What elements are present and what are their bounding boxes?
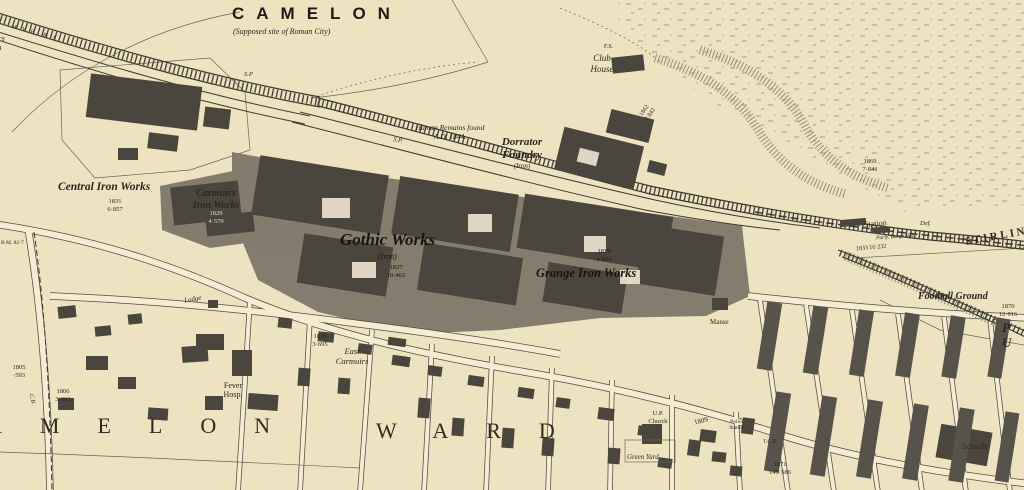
label-gothic-sub: (Iron): [378, 252, 397, 261]
label-central-iron-works: Central Iron Works: [58, 181, 150, 195]
label-camelon: CAMELON: [232, 4, 402, 24]
label-football-ground: Football Ground: [918, 291, 988, 303]
label-camelon-subtitle: (Supposed site of Roman City): [233, 27, 330, 36]
label-carmuirs-nums: 1829 4·579: [196, 210, 236, 225]
label-green-yard: Green Yard: [627, 453, 659, 461]
label-nums-1806: 1806 3·002: [44, 388, 82, 403]
label-signal-post-1: S.P: [244, 71, 253, 79]
label-human-remains: Human Remains found A.D. 1844.: [404, 124, 496, 142]
label-fever-hospital: Fever Hosp.: [212, 381, 254, 400]
label-police-station: Police Station: [722, 419, 752, 432]
label-signal-post-2: S.P.: [392, 136, 403, 145]
label-gothic-works: Gothic Works: [340, 230, 435, 250]
label-ward-ward: WARD: [376, 418, 593, 444]
label-nums-1869: 1869 7·841: [850, 158, 890, 173]
label-benchmark: B.M. 82·7: [1, 240, 24, 246]
label-carmuirs-iron-works: Carmuirs Iron Works: [178, 188, 254, 212]
label-grange-iron-works: Grange Iron Works: [536, 266, 636, 281]
label-schools: Schools: [962, 442, 987, 451]
label-def-mark: Def.: [920, 220, 931, 228]
label-carmuirs-junction: Carmuirs Junction: [0, 34, 5, 53]
label-dorrator-foundry: Dorrator Foundry: [494, 136, 550, 162]
label-dorrator-sub: (Iron): [502, 162, 542, 170]
label-ward-amelon: AMELON: [0, 413, 308, 439]
label-gothic-nums: 1827 10·462: [372, 264, 420, 279]
label-club-house: Club House: [582, 53, 622, 74]
label-manse: Manse: [710, 318, 729, 326]
label-grange-nums: 1819 4·836: [584, 248, 624, 263]
historical-os-map: CAMELON (Supposed site of Roman City) Ca…: [0, 0, 1024, 490]
label-nums-1871: 1871 149·586: [758, 461, 802, 476]
label-station: Station: [864, 218, 887, 229]
label-up-church: U.P. Church: [640, 410, 676, 425]
label-football-nums: 1870 12·916: [988, 303, 1024, 318]
label-pu-partial: P U: [1002, 320, 1024, 351]
label-nums-1805: 1805 ·593: [2, 364, 36, 379]
label-central-nums: 1831 6·857: [94, 198, 136, 213]
label-east-carmuirs: East Carmuirs: [326, 346, 378, 366]
label-fs-mark: F.S.: [604, 44, 613, 51]
label-tcb-mark: T.C.B.: [763, 439, 777, 445]
